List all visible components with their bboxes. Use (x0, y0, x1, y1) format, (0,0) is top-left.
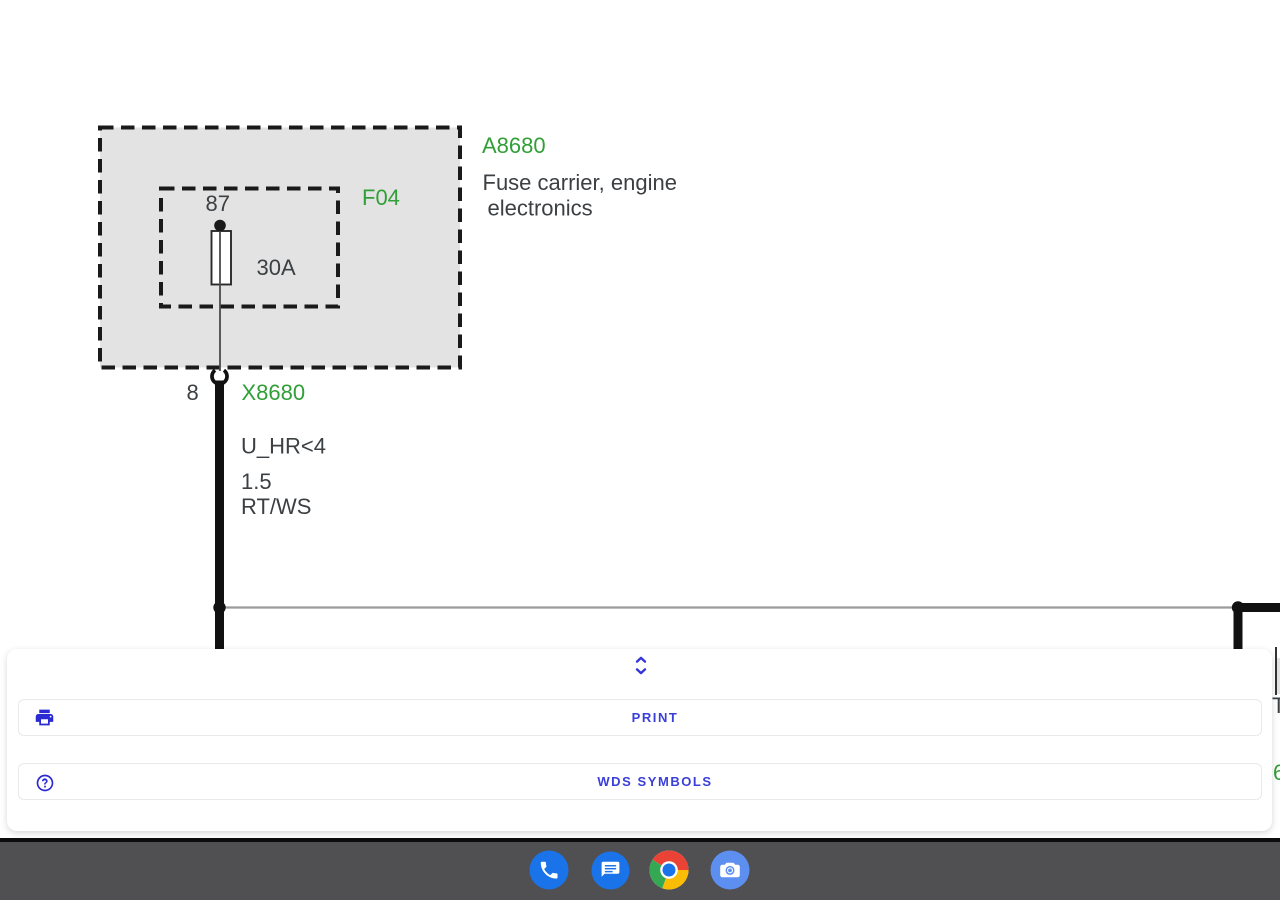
svg-text:8: 8 (187, 380, 199, 405)
svg-text:U_HR<4: U_HR<4 (241, 434, 326, 459)
svg-text:X8680: X8680 (242, 380, 306, 405)
svg-text:1.5: 1.5 (241, 469, 272, 494)
svg-text:30A: 30A (257, 255, 296, 280)
svg-text:electronics: electronics (488, 196, 593, 221)
svg-text:6: 6 (1273, 760, 1280, 785)
svg-text:F04: F04 (362, 185, 400, 210)
svg-text:87: 87 (206, 191, 230, 216)
svg-text:Fuse carrier, engine: Fuse carrier, engine (483, 170, 677, 195)
svg-text:T1: T1 (1272, 693, 1280, 718)
svg-text:RT/WS: RT/WS (241, 494, 311, 519)
svg-text:A8680: A8680 (482, 133, 546, 158)
